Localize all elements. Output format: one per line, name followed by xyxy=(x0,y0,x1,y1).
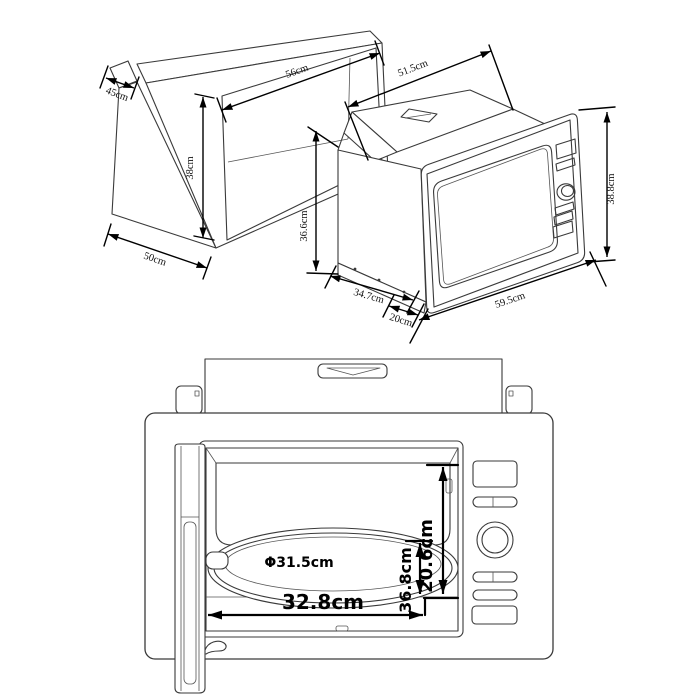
rear-vent-handle xyxy=(318,364,387,378)
cavity-width-label: 32.8cm xyxy=(282,590,364,614)
mounting-tab-left xyxy=(176,386,202,414)
microwave-front-height-label: 38.8cm xyxy=(606,173,617,204)
turntable-diameter-label: Φ31.5cm xyxy=(264,555,333,571)
microwave-depth-label: 51.5cm xyxy=(397,58,430,79)
cavity-depth-label: 36.8cm xyxy=(396,547,415,613)
microwave-spec-sheet: 45cm 56cm 38cm 50cm xyxy=(0,0,700,700)
technical-diagram: 45cm 56cm 38cm 50cm xyxy=(0,0,700,700)
microwave-trim-depth-label: 20cm xyxy=(388,312,414,329)
front-view-drawing: 20.6cm 36.8cm 32.8cm Φ31.5cm xyxy=(145,359,553,693)
mounting-tab-right xyxy=(506,386,532,414)
dim-microwave-front-height: 38.8cm xyxy=(579,107,617,262)
microwave-body-height-label: 36.6cm xyxy=(299,210,310,241)
door-hinge-pin xyxy=(206,552,228,569)
cabinet-height-label: 38cm xyxy=(185,156,196,179)
